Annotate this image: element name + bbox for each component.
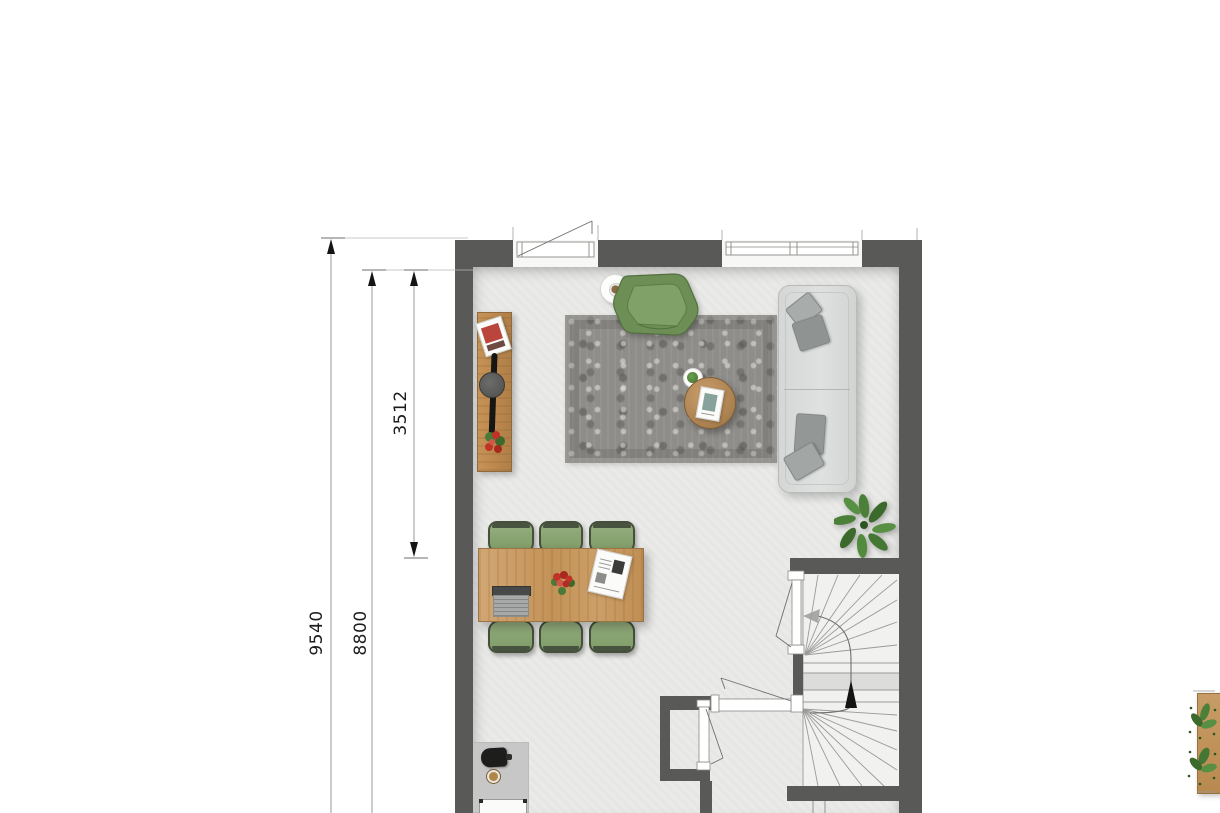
laptop bbox=[492, 586, 529, 616]
dimension-label-9540: 9540 bbox=[307, 610, 327, 655]
dimension-label-3512: 3512 bbox=[391, 390, 411, 435]
dining-chair bbox=[589, 620, 635, 653]
sofa-seam bbox=[784, 389, 850, 390]
sofa bbox=[778, 285, 857, 493]
armchair-seat bbox=[628, 284, 687, 326]
newspaper-photo-2 bbox=[595, 572, 607, 584]
coffee-station-cup bbox=[486, 769, 501, 784]
magazine-image bbox=[702, 393, 718, 412]
dimension-label-8800: 8800 bbox=[351, 610, 371, 655]
coffee-machine bbox=[481, 747, 508, 767]
planter-greenery-bottom bbox=[1184, 742, 1220, 788]
stool bbox=[479, 799, 527, 813]
newspaper-photo bbox=[611, 560, 625, 575]
coffee-station-mat bbox=[472, 742, 529, 813]
sideboard bbox=[477, 312, 512, 472]
decor-bowl bbox=[479, 372, 505, 398]
floor-plan-canvas: 9540 8800 3512 bbox=[0, 0, 1220, 813]
planter-greenery-top bbox=[1186, 700, 1220, 744]
coffee-machine-handle bbox=[506, 754, 512, 760]
laptop-keyboard bbox=[493, 595, 529, 617]
magazine-on-sideboard bbox=[475, 316, 511, 358]
sideboard-flowers bbox=[480, 425, 510, 465]
flower-bouquet bbox=[548, 568, 578, 598]
opening-ticks bbox=[513, 225, 917, 240]
magazine-on-coffee-table bbox=[695, 386, 724, 422]
plant bbox=[834, 492, 898, 558]
dining-chair bbox=[488, 620, 534, 653]
coffee-table bbox=[684, 377, 736, 429]
dimension-lines bbox=[321, 238, 477, 813]
dining-chair bbox=[539, 620, 583, 653]
armchair bbox=[612, 266, 700, 338]
